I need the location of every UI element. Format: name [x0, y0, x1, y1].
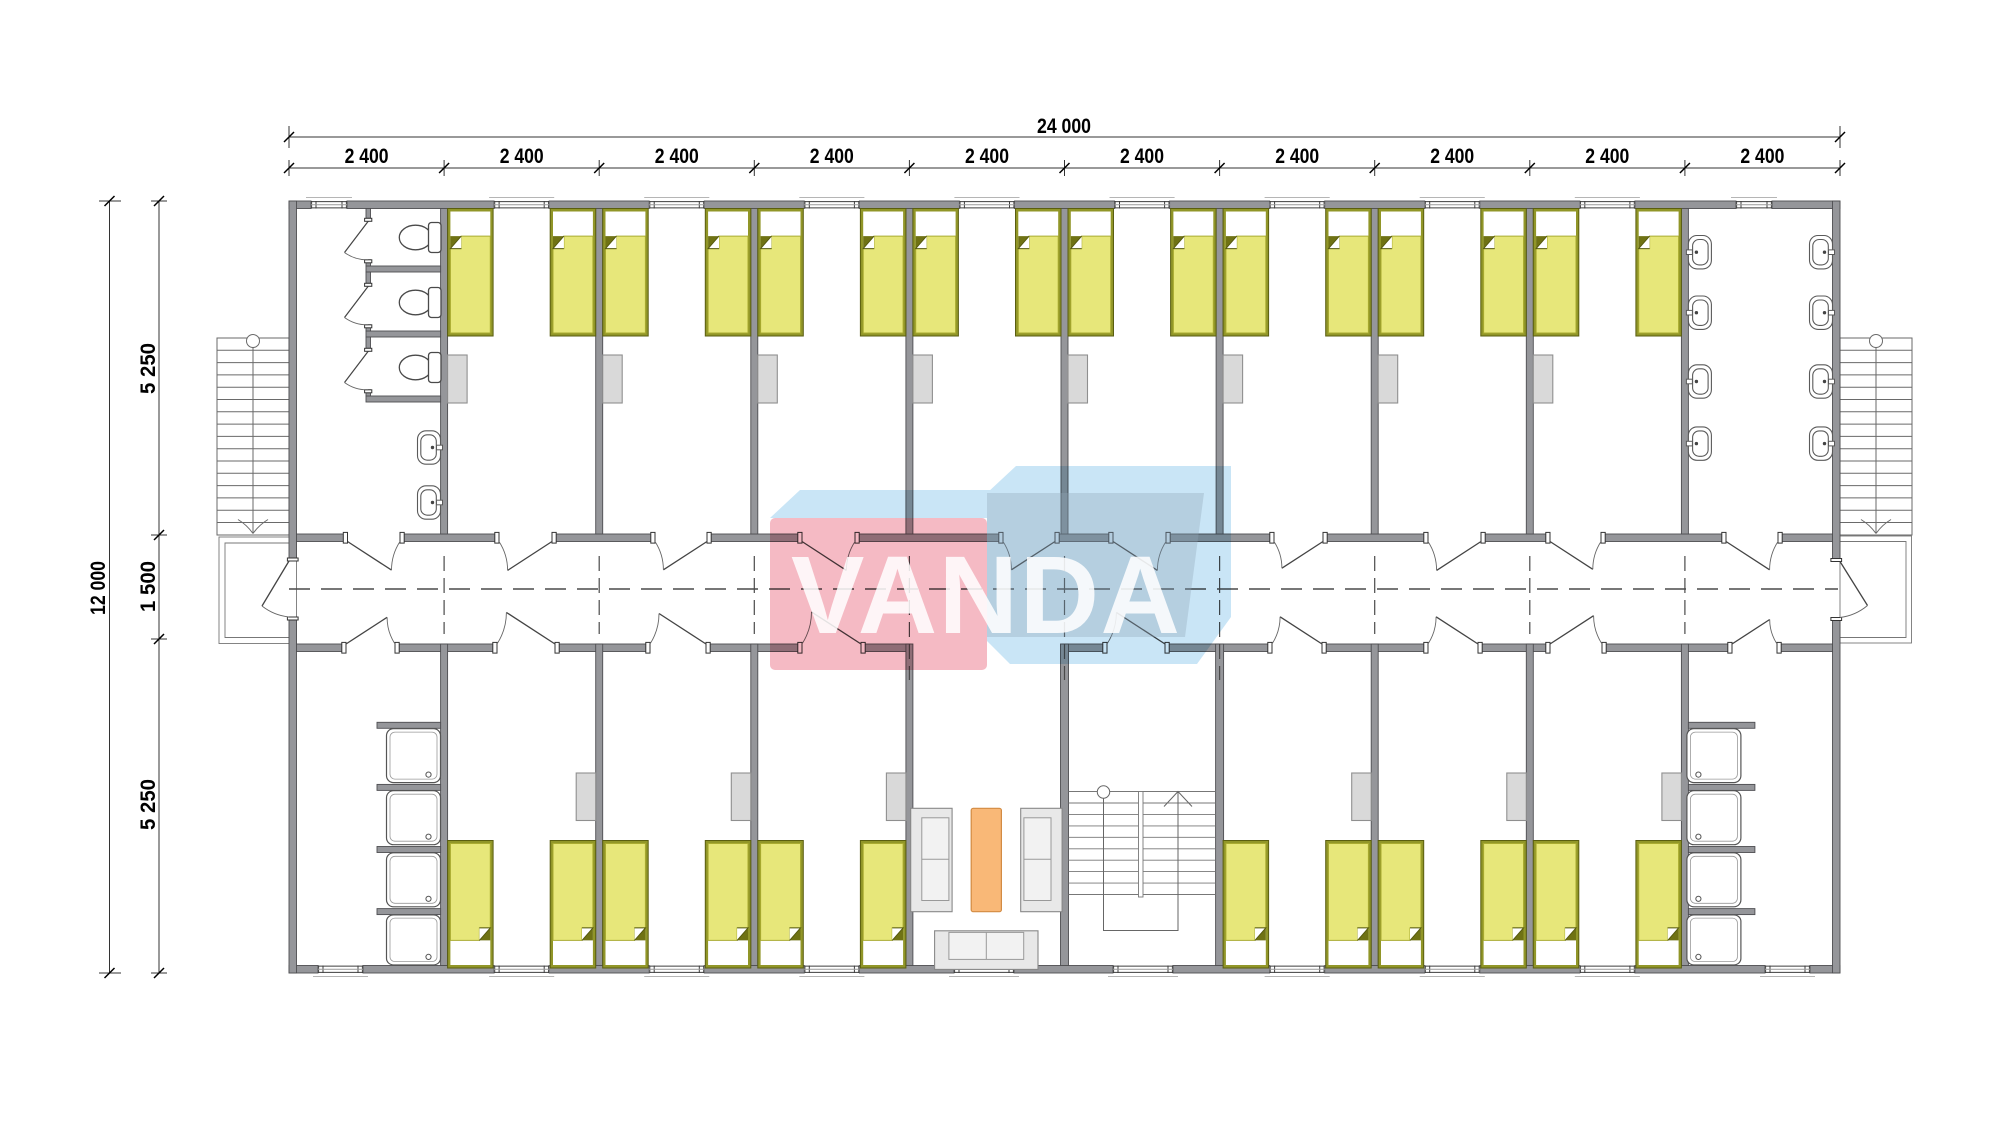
svg-text:1 500: 1 500 [137, 561, 160, 612]
svg-text:2 400: 2 400 [965, 145, 1009, 168]
svg-text:2 400: 2 400 [345, 145, 389, 168]
svg-text:VANDA: VANDA [791, 534, 1181, 657]
svg-text:2 400: 2 400 [810, 145, 854, 168]
svg-text:2 400: 2 400 [1740, 145, 1784, 168]
svg-text:2 400: 2 400 [1120, 145, 1164, 168]
svg-text:12 000: 12 000 [87, 561, 110, 615]
svg-text:2 400: 2 400 [500, 145, 544, 168]
svg-text:5 250: 5 250 [137, 343, 160, 394]
svg-text:2 400: 2 400 [1275, 145, 1319, 168]
svg-text:2 400: 2 400 [1585, 145, 1629, 168]
svg-text:5 250: 5 250 [137, 779, 160, 830]
svg-text:2 400: 2 400 [1430, 145, 1474, 168]
svg-text:2 400: 2 400 [655, 145, 699, 168]
svg-text:24 000: 24 000 [1037, 115, 1091, 138]
